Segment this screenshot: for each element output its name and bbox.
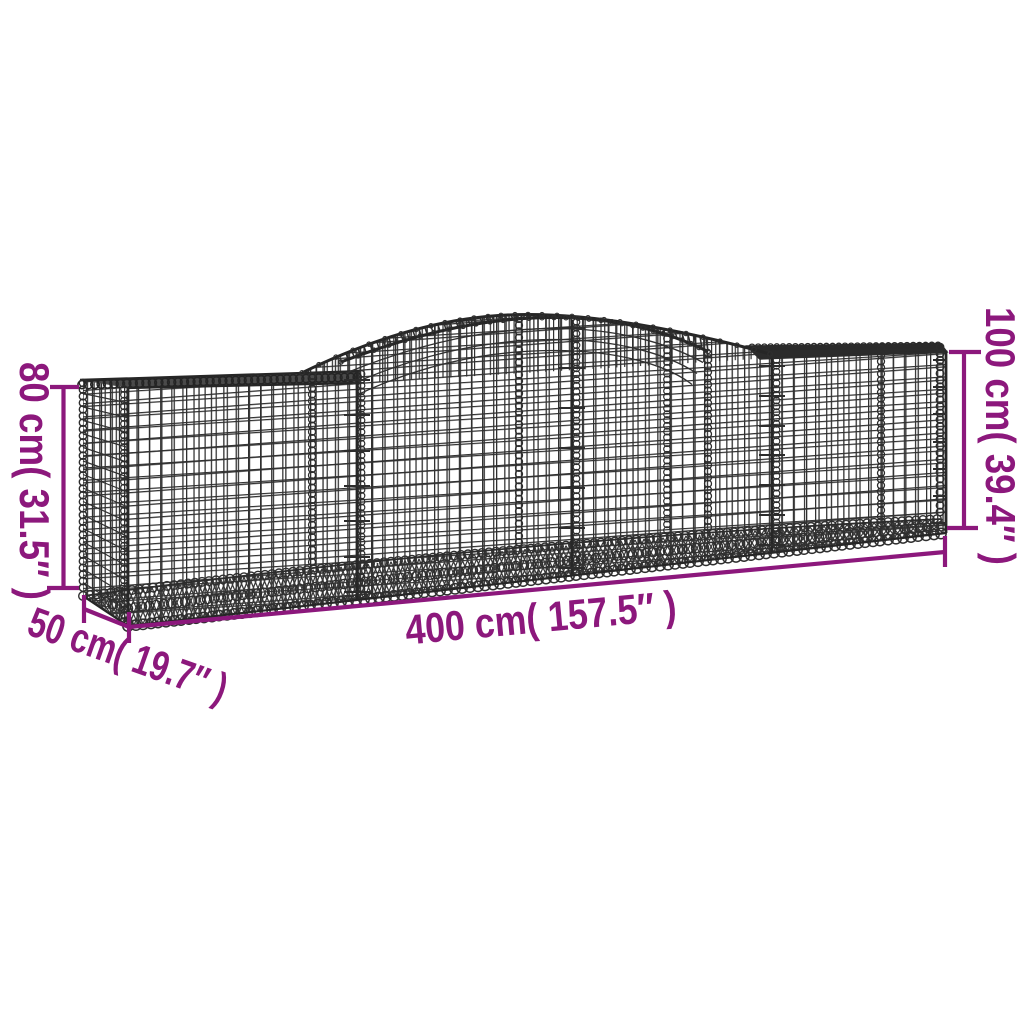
svg-text:80 cm( 31.5″ ): 80 cm( 31.5″ )	[11, 362, 58, 600]
svg-text:100 cm( 39.4″ ): 100 cm( 39.4″ )	[977, 307, 1024, 565]
